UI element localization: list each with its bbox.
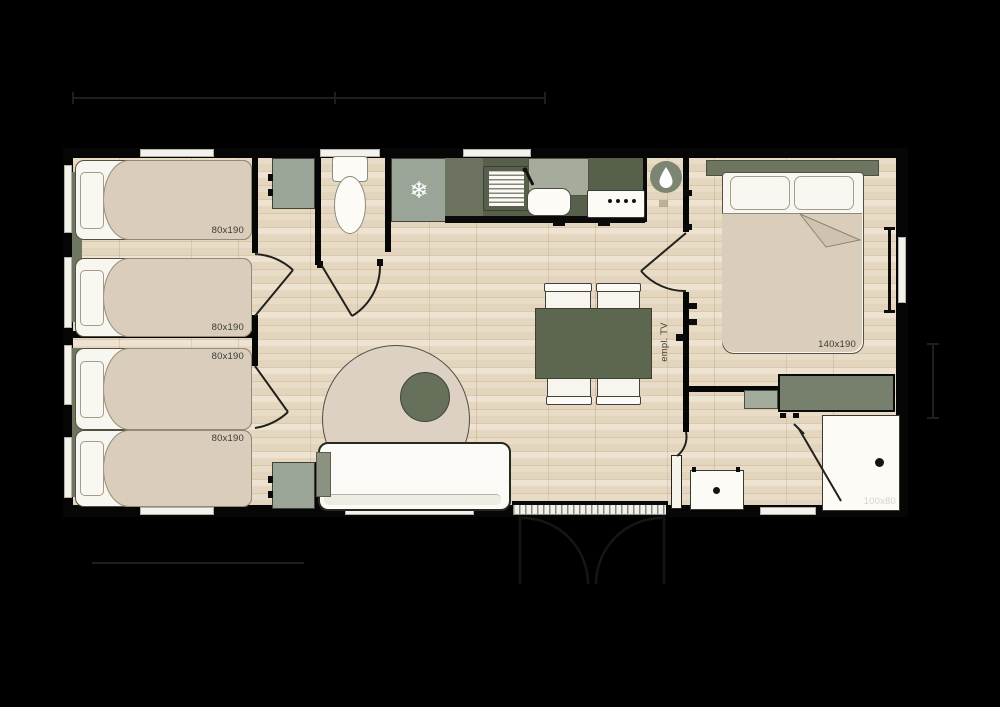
wardrobe-foot — [793, 413, 799, 418]
dimension-line-bottom — [92, 562, 304, 564]
wall-wc-left — [315, 150, 321, 265]
bed-size-label: 80x190 — [184, 226, 244, 236]
window-bottom-bedroom2 — [140, 507, 214, 515]
single-bed-1: 80x190 — [75, 160, 252, 240]
tv-bracket — [689, 319, 697, 325]
dimension-tick — [334, 92, 336, 104]
curtain-rod-master — [888, 228, 891, 312]
bed-size-label: 80x190 — [184, 352, 244, 362]
basin-tick — [736, 467, 740, 472]
burner — [632, 199, 636, 203]
single-bed-2: 80x190 — [75, 258, 252, 337]
kitchen-counter-section — [445, 158, 483, 216]
freezer-icon: ❄ — [409, 177, 428, 204]
pillow — [80, 441, 104, 496]
round-side-table — [400, 372, 450, 422]
sofa-seat-front — [324, 494, 501, 505]
door-stop — [317, 261, 323, 268]
dining-chair — [597, 376, 640, 403]
wall-bedrooms-corridor-mid — [252, 315, 258, 366]
kitchen-sink — [527, 188, 571, 216]
double-bed-duvet — [722, 213, 862, 352]
pillow — [730, 176, 790, 210]
wall-bedrooms-corridor-upper — [252, 150, 258, 253]
toilet-bowl — [334, 176, 366, 234]
burner — [624, 199, 628, 203]
window-bottom-bathroom — [760, 507, 816, 515]
door-stop — [683, 190, 692, 196]
dimension-tick — [72, 92, 74, 104]
shower-drain-icon — [875, 458, 884, 467]
fridge: ❄ — [391, 158, 447, 222]
entrance-door-arc-left — [522, 518, 588, 584]
door-stop — [377, 259, 383, 266]
dimension-line-top — [72, 97, 546, 99]
counter-foot — [598, 222, 610, 226]
window-top-bedroom1 — [140, 149, 214, 157]
bed-size-label: 80x190 — [184, 434, 244, 444]
door-stop — [683, 224, 692, 230]
dining-table — [535, 308, 652, 379]
entrance-threshold — [513, 505, 666, 515]
cooktop — [587, 190, 645, 218]
burner — [616, 199, 620, 203]
window-left-4 — [64, 437, 72, 498]
corridor-cabinet-top — [272, 158, 315, 209]
bathroom-door-leaf — [671, 455, 682, 509]
pillow — [794, 176, 854, 210]
dimension-tick — [927, 417, 939, 419]
cabinet-hinge — [268, 476, 273, 483]
cabinet-hinge — [268, 189, 273, 196]
wardrobe-foot — [780, 413, 786, 418]
pillow — [80, 270, 104, 326]
dish-drainer — [483, 166, 530, 211]
floorplan-canvas: 80x190 80x190 80x190 80x190 ❄ — [0, 0, 1000, 707]
wardrobe — [778, 374, 895, 412]
single-bed-4: 80x190 — [75, 430, 252, 507]
cabinet-hinge — [268, 174, 273, 181]
washbasin-drain-icon — [713, 487, 720, 494]
window-left-1 — [64, 165, 72, 233]
heater-vent — [659, 200, 668, 207]
dimension-tick — [927, 343, 939, 345]
bed-size-label: 140x190 — [786, 340, 856, 350]
counter-foot — [553, 222, 565, 226]
entrance-door-arc-right — [596, 518, 662, 584]
window-left-2 — [64, 257, 72, 328]
bed-size-label: 80x190 — [184, 323, 244, 333]
basin-tick — [692, 467, 696, 472]
tv-bracket — [689, 303, 697, 309]
dining-chair — [547, 376, 591, 403]
wall-bathroom-left — [683, 392, 689, 432]
window-top-kitchen — [463, 149, 531, 157]
sofa-armrest-table — [316, 452, 331, 497]
bedside-cabinet — [744, 390, 778, 409]
window-right-master — [898, 237, 906, 303]
single-bed-3: 80x190 — [75, 348, 252, 430]
window-left-3 — [64, 345, 72, 405]
shower-size-label: 100x80 — [838, 497, 896, 507]
burner — [608, 199, 612, 203]
water-heater — [650, 161, 682, 193]
dimension-tick — [544, 92, 546, 104]
corridor-cabinet-bottom — [272, 462, 315, 509]
pillow — [80, 172, 104, 229]
dimension-line-right — [932, 343, 934, 419]
cabinet-hinge — [268, 491, 273, 498]
tv-mount — [676, 334, 686, 341]
tv-spot-label: empl. TV — [660, 305, 672, 379]
pillow — [80, 361, 104, 418]
